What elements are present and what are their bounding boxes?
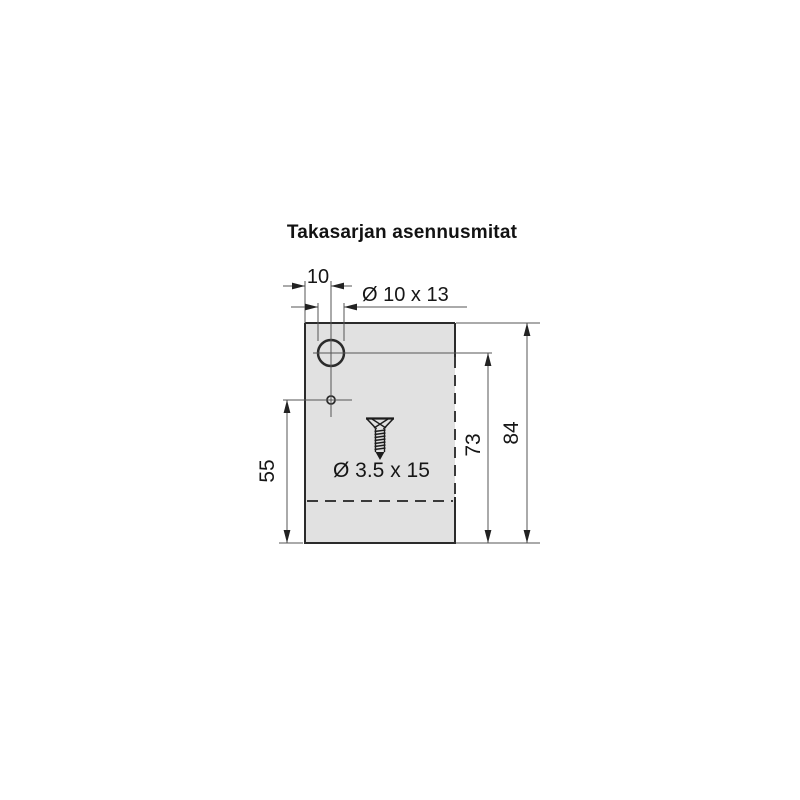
- arrow-left-icon: [344, 304, 357, 311]
- arrow-down-icon: [284, 530, 291, 543]
- technical-drawing: Takasarjan asennusmitat 10 Ø 10 x 13 55 …: [0, 0, 800, 800]
- arrow-right-icon: [292, 283, 305, 290]
- arrow-right-icon: [305, 304, 318, 311]
- arrow-up-icon: [524, 323, 531, 336]
- arrow-down-icon: [485, 530, 492, 543]
- dim-label-screw: Ø 3.5 x 15: [333, 459, 430, 483]
- arrow-up-icon: [284, 400, 291, 413]
- dim-label-total-height: 84: [500, 421, 524, 444]
- dim-label-hole-height: 73: [462, 433, 486, 456]
- arrow-left-icon: [331, 283, 344, 290]
- dim-label-hole: Ø 10 x 13: [362, 284, 449, 307]
- rear-panel-mounting-diagram: [0, 0, 800, 800]
- arrow-down-icon: [524, 530, 531, 543]
- dim-label-top-offset: 10: [307, 266, 329, 289]
- diagram-title: Takasarjan asennusmitat: [287, 222, 517, 244]
- dim-label-left-height: 55: [256, 459, 280, 482]
- arrow-up-icon: [485, 353, 492, 366]
